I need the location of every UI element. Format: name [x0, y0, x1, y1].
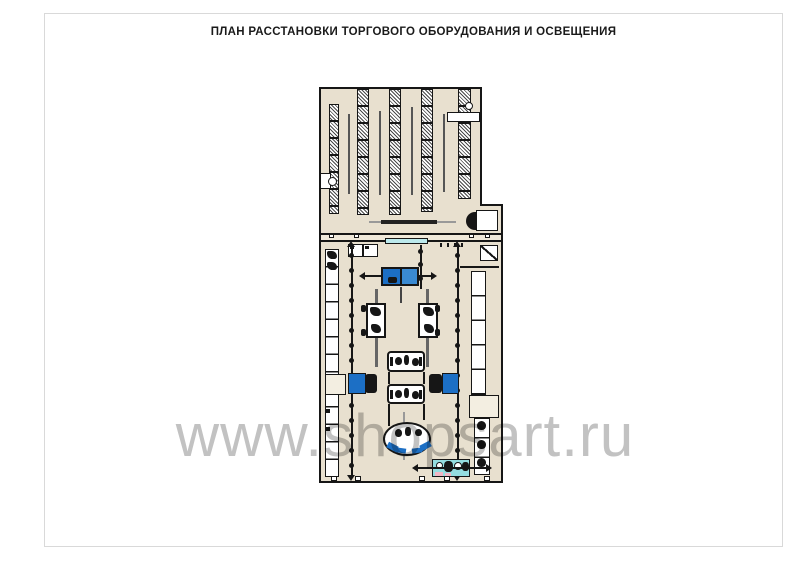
page-title: ПЛАН РАССТАНОВКИ ТОРГОВОГО ОБОРУДОВАНИЯ … [44, 26, 783, 38]
promo-table-blue [442, 373, 459, 394]
arrow-right-icon [431, 272, 437, 280]
arrow-down-icon [347, 475, 355, 481]
light-row [379, 111, 381, 195]
merchandise [371, 324, 381, 333]
display-tab [419, 390, 422, 399]
light-row-horizontal-core [381, 220, 437, 224]
side-table [325, 374, 346, 395]
watermark: www.shopsart.ru [176, 406, 635, 466]
wall-shelving-right [471, 271, 486, 395]
track-lamps [349, 253, 354, 258]
wall-marker [485, 234, 490, 238]
storage-door [476, 210, 498, 231]
merchandise [395, 357, 402, 365]
mirror [480, 245, 498, 261]
merchandise [424, 324, 434, 333]
display-table-blue [381, 267, 419, 286]
rail-stem [400, 287, 402, 303]
accessory-display [387, 351, 425, 372]
wall-marker [484, 476, 490, 481]
wall-tick [440, 243, 442, 247]
display-tab [390, 390, 393, 399]
wall-notch [480, 87, 503, 206]
clothing-rail-display [366, 303, 386, 338]
fitting-room-mark [365, 246, 369, 249]
rack-knob [328, 177, 337, 186]
merchandise [404, 388, 409, 398]
beam-knob [465, 102, 473, 110]
table-top [401, 269, 417, 284]
accessory-display [387, 384, 425, 404]
hook-merchandise [361, 329, 366, 336]
storage-rack [329, 104, 339, 214]
display-window [385, 238, 428, 244]
wall-tick [461, 243, 463, 247]
hook-merchandise [435, 305, 440, 312]
display-tab [390, 357, 393, 366]
merchandise [423, 307, 434, 316]
hook-merchandise [361, 305, 366, 312]
connector-line [423, 372, 425, 384]
merchandise [327, 251, 337, 259]
wall-marker [331, 476, 337, 481]
merchandise [395, 390, 402, 398]
cash-mat [435, 472, 443, 476]
wall-marker [419, 476, 425, 481]
connector-line [388, 372, 390, 384]
merchandise-stack [429, 374, 442, 393]
promo-table-blue [348, 373, 366, 394]
hook-merchandise [435, 329, 440, 336]
storage-rack [357, 89, 369, 215]
light-row [443, 114, 445, 192]
light-row [348, 114, 350, 194]
track-lamps [418, 249, 423, 254]
track-lamps [455, 253, 460, 258]
light-row [411, 107, 413, 195]
merchandise [404, 355, 409, 365]
rack-beam [447, 112, 480, 122]
display-tab [419, 357, 422, 366]
wall-tick [447, 243, 449, 247]
merchandise [388, 277, 397, 283]
merchandise [412, 391, 419, 399]
merchandise [327, 262, 337, 270]
wall-marker [354, 234, 359, 238]
merchandise-stack [365, 374, 377, 393]
wall-marker [469, 234, 474, 238]
arrow-left-icon [359, 272, 365, 280]
fitting-room [363, 244, 378, 257]
wall-marker [444, 476, 450, 481]
page: { "title": "ПЛАН РАССТАНОВКИ ТОРГОВОГО О… [0, 0, 794, 561]
storage-rack [389, 89, 401, 215]
wall-marker [329, 234, 334, 238]
table-divider [400, 269, 402, 284]
merchandise [370, 307, 381, 316]
storage-rack [421, 89, 433, 212]
partition-line [460, 266, 499, 268]
merchandise [412, 358, 419, 366]
wall-marker [355, 476, 361, 481]
